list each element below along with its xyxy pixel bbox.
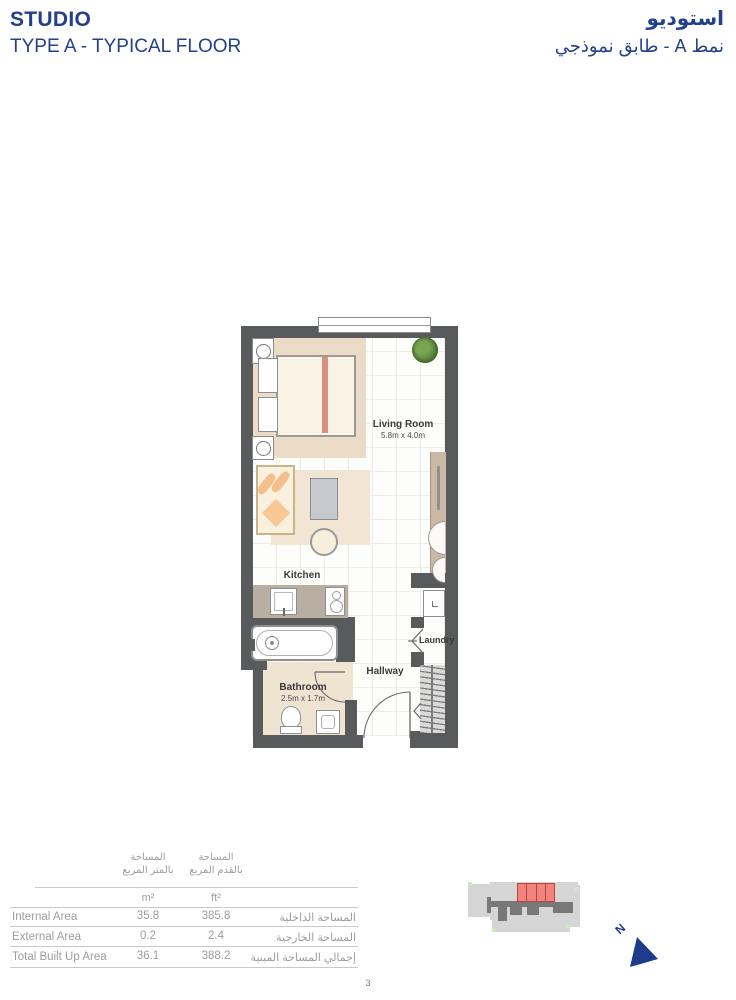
page-subtitle-arabic: نمط A - طابق نموذجي <box>555 36 724 57</box>
header-arabic: استوديو نمط A - طابق نموذجي <box>555 6 724 57</box>
row-label-external-arabic: المساحة الخارجية <box>226 931 356 944</box>
kitchen-label: Kitchen <box>262 570 342 582</box>
bathroom-dims: 2.5m x 1.7m <box>258 694 348 703</box>
brochure-page: STUDIO TYPE A - TYPICAL FLOOR استوديو نم… <box>0 0 736 1000</box>
row-label-external: External Area <box>12 931 81 943</box>
living-room-dims: 5.8m x 4.0m <box>360 431 446 440</box>
page-subtitle: TYPE A - TYPICAL FLOOR <box>10 36 241 58</box>
key-plan-unit <box>510 907 522 915</box>
bathroom-label: Bathroom 2.5m x 1.7m <box>258 682 348 703</box>
area-table: المساحة بالمتر المربع المساحة بالقدم الم… <box>10 850 358 970</box>
table-rule <box>10 907 358 908</box>
header-english: STUDIO TYPE A - TYPICAL FLOOR <box>10 8 241 58</box>
table-rule <box>10 946 358 947</box>
floor-plan: Living Room 5.8m x 4.0m Kitchen Bathroom… <box>241 317 458 748</box>
table-rule <box>10 967 358 968</box>
key-plan-highlighted-units <box>517 883 555 902</box>
row-label-internal-arabic: المساحة الداخلية <box>226 911 356 924</box>
page-number: 3 <box>0 978 736 988</box>
north-arrow-icon <box>612 920 667 975</box>
row-label-total-arabic: إجمالي المساحة المبنية <box>226 951 356 964</box>
page-title: STUDIO <box>10 8 241 32</box>
key-plan-accent <box>492 928 496 932</box>
key-plan <box>468 878 583 936</box>
key-plan-unit <box>527 907 539 915</box>
hallway-label: Hallway <box>345 666 425 678</box>
key-plan-corridor <box>487 897 491 913</box>
row-label-internal: Internal Area <box>12 911 77 923</box>
col-header-ft2-arabic: المساحة بالقدم المربع <box>171 852 261 877</box>
key-plan-accent <box>468 882 472 886</box>
living-room-name: Living Room <box>360 419 446 431</box>
page-title-arabic: استوديو <box>555 6 724 31</box>
table-rule <box>35 887 358 888</box>
laundry-label: Laundry <box>419 635 455 645</box>
key-plan-unit <box>553 902 573 913</box>
living-room-label: Living Room 5.8m x 4.0m <box>360 419 446 440</box>
unit-ft2: ft² <box>176 892 256 904</box>
row-label-total: Total Built Up Area <box>12 951 107 963</box>
key-plan-accent <box>566 924 570 928</box>
key-plan-accent <box>574 887 578 891</box>
key-plan-unit <box>498 907 507 921</box>
table-rule <box>10 926 358 927</box>
bathroom-name: Bathroom <box>258 682 348 694</box>
